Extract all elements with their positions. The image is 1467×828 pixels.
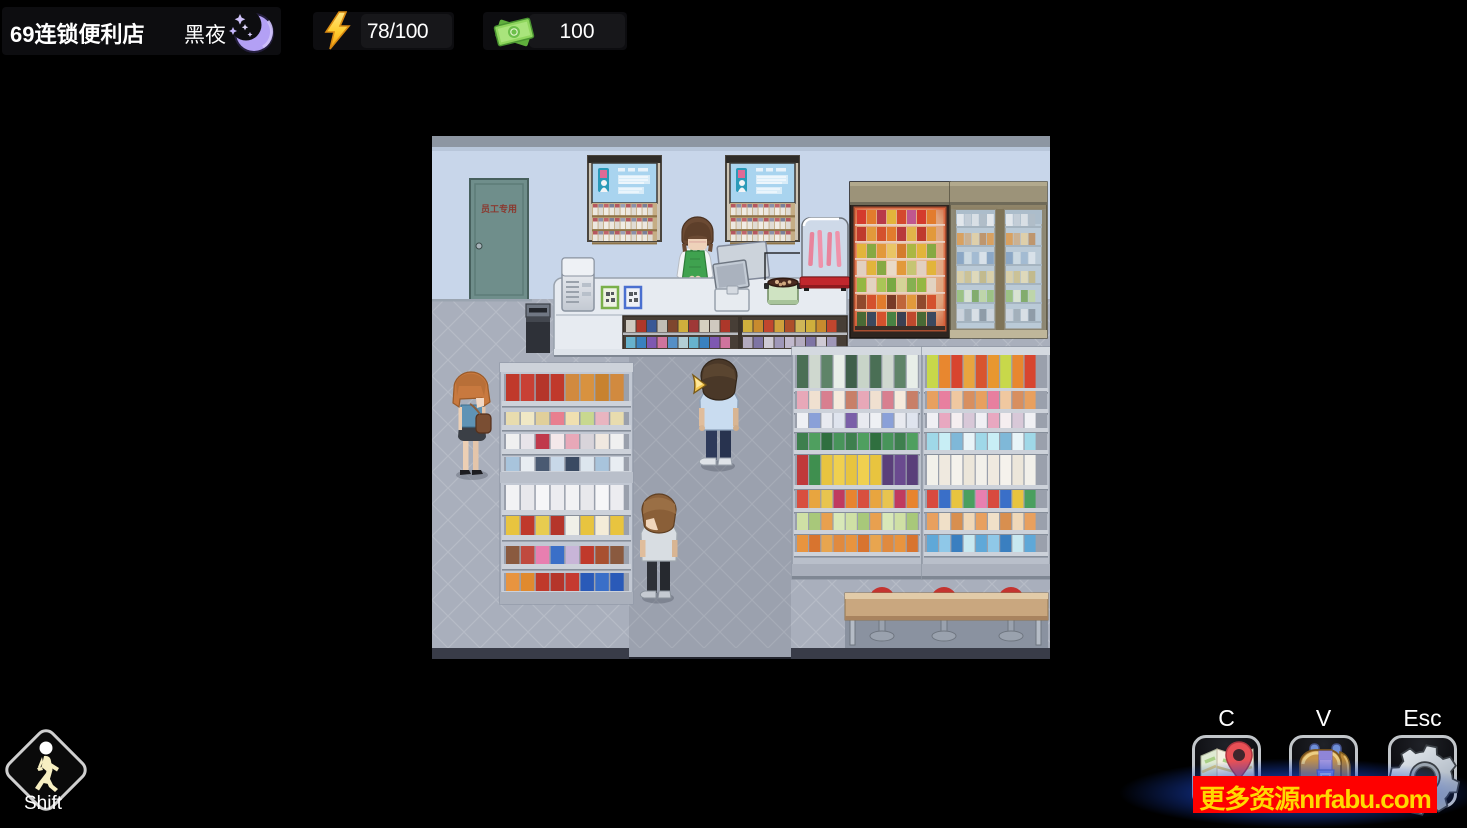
- svg-text:员工专用: 员工专用: [481, 203, 517, 214]
